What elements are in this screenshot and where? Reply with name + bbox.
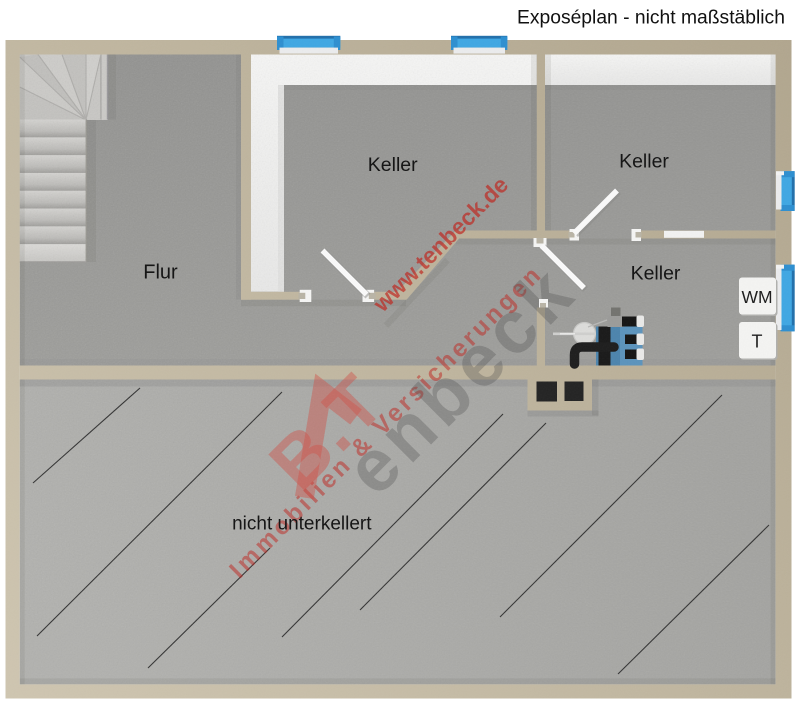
svg-text:Flur: Flur [143,262,178,284]
svg-text:Keller: Keller [619,151,669,173]
svg-text:Keller: Keller [368,154,418,176]
svg-text:nicht unterkellert: nicht unterkellert [232,514,372,535]
svg-text:Exposéplan - nicht maßstäblich: Exposéplan - nicht maßstäblich [517,8,785,29]
svg-text:Keller: Keller [631,263,681,285]
